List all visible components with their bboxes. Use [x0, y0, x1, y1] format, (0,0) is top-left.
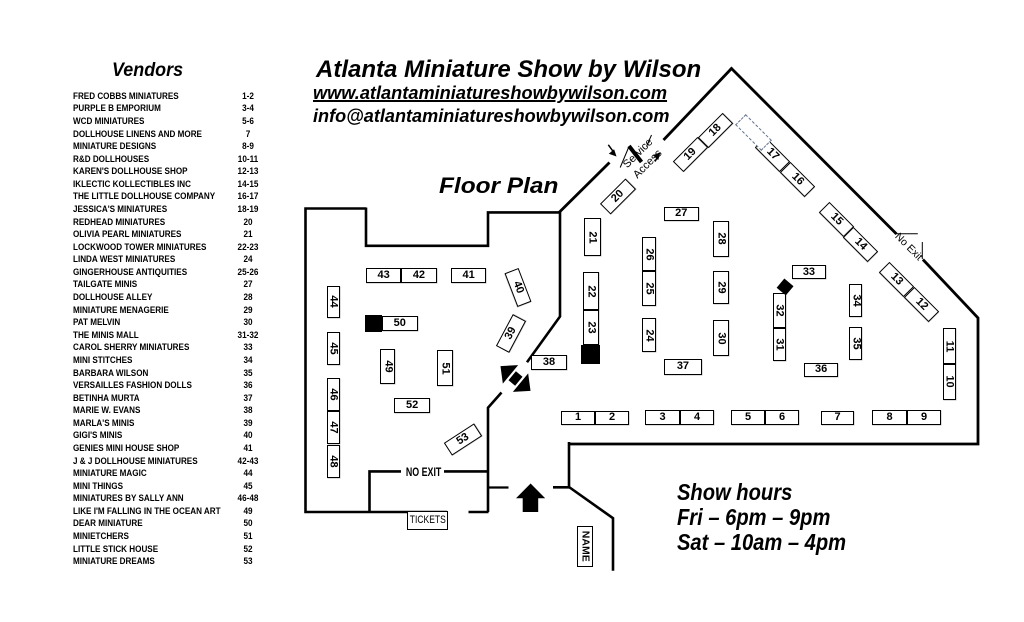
svg-text:No Exit: No Exit: [892, 231, 924, 263]
